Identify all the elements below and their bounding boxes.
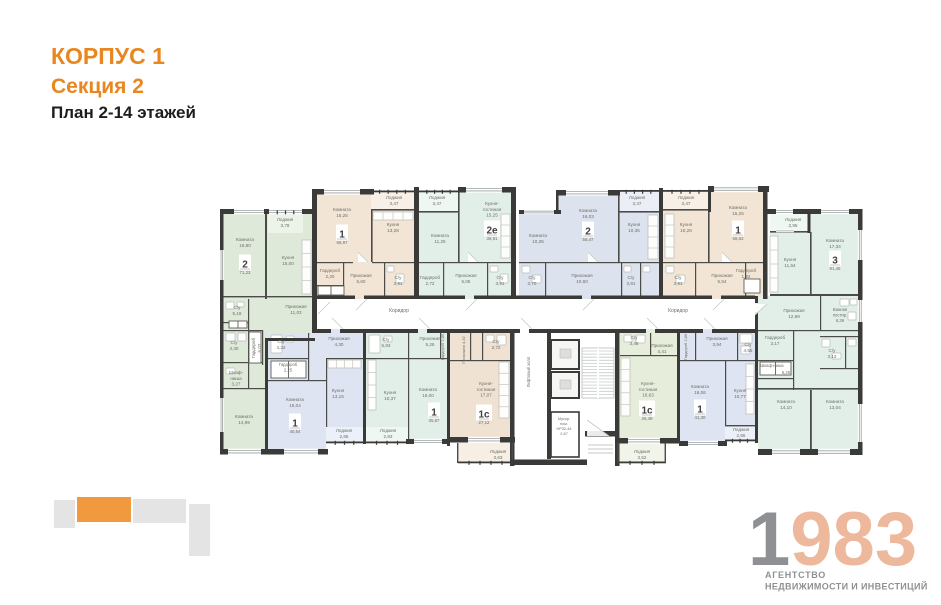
svg-text:6,28: 6,28 — [782, 370, 791, 375]
svg-text:91,45: 91,45 — [830, 266, 842, 271]
svg-text:Кухня10,28: Кухня10,28 — [680, 222, 693, 233]
svg-text:Коридор: Коридор — [668, 308, 688, 314]
svg-text:Кухня10,35: Кухня10,35 — [628, 222, 641, 233]
svg-text:Кухня13,15: Кухня13,15 — [332, 388, 345, 399]
svg-text:27,12: 27,12 — [479, 420, 491, 425]
svg-text:Кухня13,28: Кухня13,28 — [387, 222, 400, 233]
svg-text:Гардероб 2,86: Гардероб 2,86 — [683, 333, 688, 360]
svg-text:40,54: 40,54 — [290, 429, 302, 434]
svg-text:Гардероб 2,89: Гардероб 2,89 — [440, 333, 445, 360]
svg-text:71,23: 71,23 — [240, 270, 252, 275]
svg-text:41,30: 41,30 — [695, 415, 707, 420]
svg-text:38,91: 38,91 — [487, 236, 499, 241]
svg-text:Кухня10,37: Кухня10,37 — [384, 390, 397, 401]
svg-text:Шкаф-ниша: Шкаф-ниша — [760, 363, 784, 368]
svg-text:58,63: 58,63 — [733, 236, 745, 241]
svg-text:56,47: 56,47 — [583, 237, 595, 242]
svg-text:КОРПУС 1: КОРПУС 1 — [51, 43, 165, 69]
svg-text:НЕДВИЖИМОСТИ И ИНВЕСТИЦИЙ: НЕДВИЖИМОСТИ И ИНВЕСТИЦИЙ — [765, 581, 928, 592]
svg-text:35,87: 35,87 — [429, 418, 441, 423]
svg-text:26,49: 26,49 — [642, 416, 654, 421]
svg-text:Кухня10,77: Кухня10,77 — [734, 388, 747, 399]
svg-text:АГЕНТСТВО: АГЕНТСТВО — [765, 570, 826, 580]
svg-text:Кухня15,00: Кухня15,00 — [282, 255, 295, 266]
svg-text:Секция 2: Секция 2 — [51, 75, 144, 98]
svg-text:58,97: 58,97 — [337, 240, 349, 245]
svg-text:План 2-14 этажей: План 2-14 этажей — [51, 103, 196, 122]
svg-text:Коридор: Коридор — [389, 308, 409, 314]
svg-text:Лифтовый холл: Лифтовый холл — [526, 356, 531, 387]
svg-text:Кухня11,64: Кухня11,64 — [784, 257, 797, 268]
svg-text:Прихожая 4,32: Прихожая 4,32 — [461, 336, 466, 364]
